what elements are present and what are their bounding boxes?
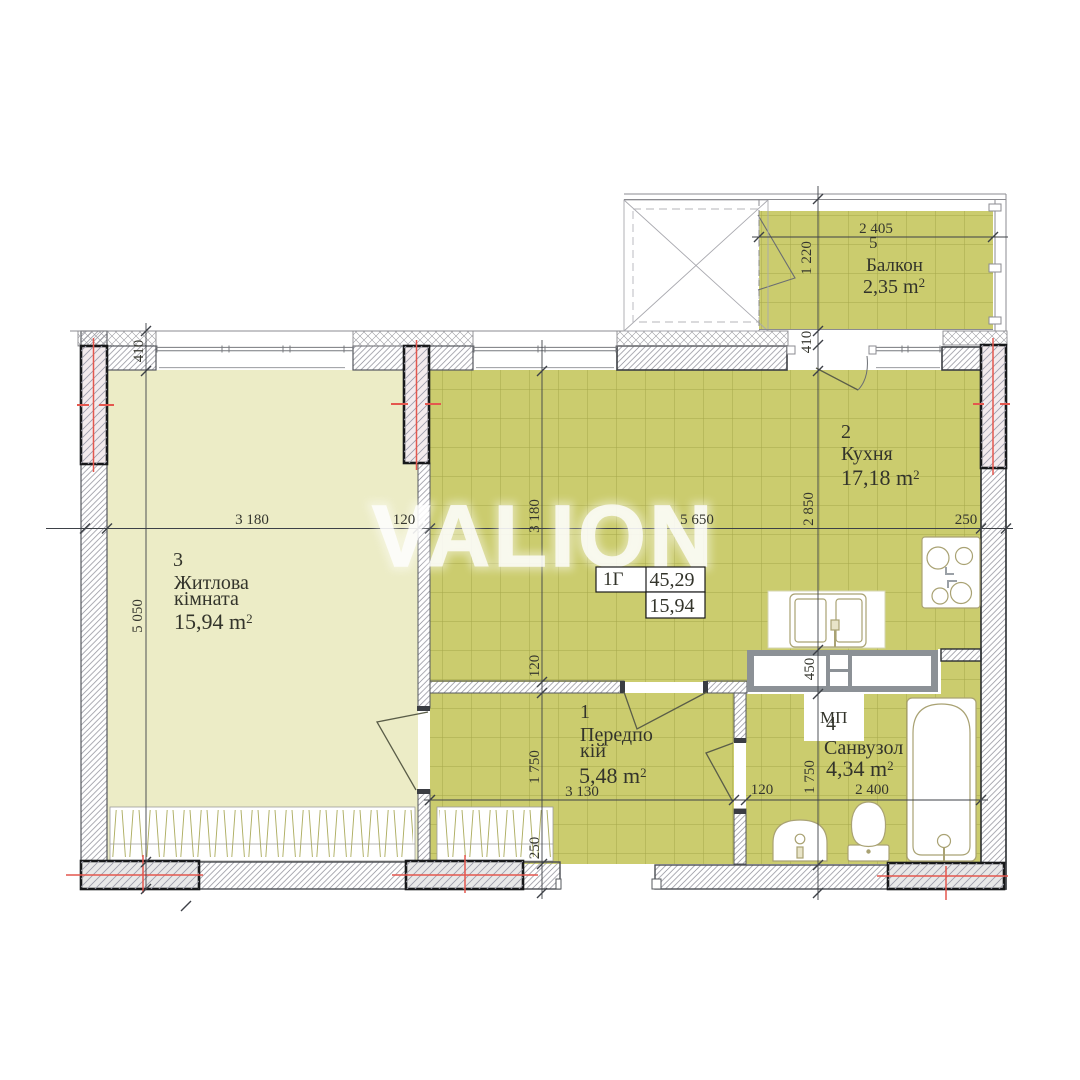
svg-text:120: 120 [751, 782, 774, 798]
svg-text:15,94 m2: 15,94 m2 [174, 609, 253, 634]
svg-text:250: 250 [527, 837, 543, 860]
svg-text:45,29: 45,29 [650, 569, 695, 591]
svg-text:3: 3 [173, 549, 183, 571]
svg-text:250: 250 [955, 512, 978, 528]
svg-text:4,34 m2: 4,34 m2 [826, 756, 894, 781]
svg-text:3 180: 3 180 [527, 499, 543, 533]
svg-text:15,94: 15,94 [650, 595, 695, 617]
svg-text:410: 410 [131, 340, 147, 363]
svg-text:5 050: 5 050 [130, 599, 146, 633]
svg-text:1Г: 1Г [603, 569, 624, 590]
svg-text:120: 120 [393, 512, 416, 528]
svg-text:4: 4 [826, 713, 836, 735]
svg-text:2,35 m2: 2,35 m2 [863, 275, 925, 298]
svg-text:1 750: 1 750 [802, 760, 818, 794]
svg-text:450: 450 [802, 658, 818, 681]
svg-text:Кухня: Кухня [841, 443, 893, 465]
svg-text:5 650: 5 650 [680, 512, 714, 528]
svg-text:2: 2 [841, 421, 851, 443]
svg-text:1: 1 [580, 701, 590, 723]
svg-text:120: 120 [527, 655, 543, 678]
svg-text:17,18 m2: 17,18 m2 [841, 465, 920, 490]
svg-text:1 750: 1 750 [527, 750, 543, 784]
svg-text:кімната: кімната [174, 588, 239, 610]
svg-text:2 400: 2 400 [855, 782, 889, 798]
svg-text:кій: кій [580, 740, 606, 762]
svg-text:2 850: 2 850 [801, 492, 817, 526]
svg-text:5: 5 [869, 233, 878, 252]
svg-text:Балкон: Балкон [866, 255, 923, 276]
svg-text:5,48 m2: 5,48 m2 [579, 763, 647, 788]
svg-text:1 220: 1 220 [799, 241, 815, 275]
svg-text:3 180: 3 180 [235, 512, 269, 528]
svg-text:410: 410 [799, 331, 815, 354]
